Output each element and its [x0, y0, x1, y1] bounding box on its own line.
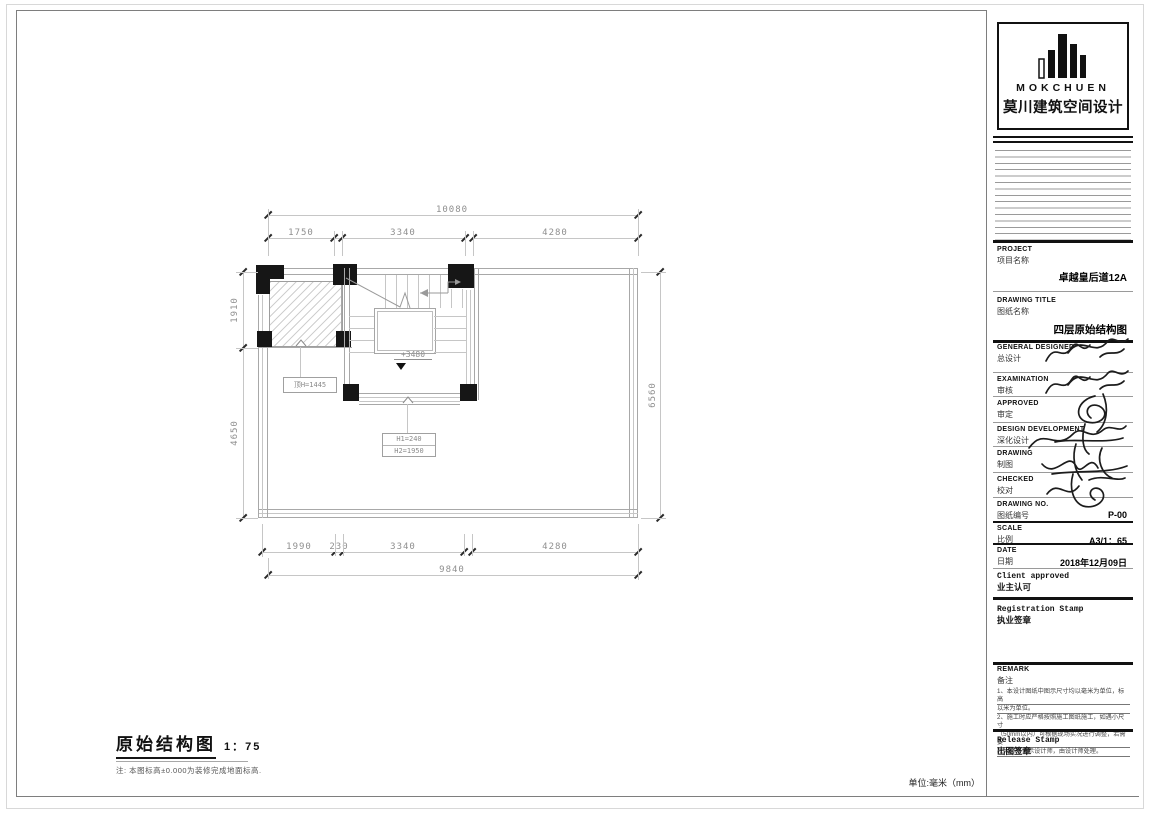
- release-stamp-label-cn: 出图签章: [997, 745, 1031, 757]
- title-block: MOKCHUEN 莫川建筑空间设计 PROJECT 项目名称 卓越皇后道12A …: [986, 10, 1139, 796]
- stair-step: [349, 328, 374, 329]
- extension-line: [268, 209, 269, 256]
- extension-line: [236, 518, 258, 519]
- row-label-cn: 制图: [997, 459, 1013, 470]
- divider: [993, 136, 1133, 138]
- title-underline: [116, 757, 216, 759]
- extension-line: [334, 231, 335, 256]
- column: [343, 384, 359, 401]
- release-stamp-label-en: Release Stamp: [997, 736, 1059, 745]
- plan-title: 原始结构图: [116, 730, 216, 755]
- signature: [1039, 468, 1129, 510]
- drawing-title-label-en: DRAWING TITLE: [997, 297, 1056, 304]
- leader-line: [407, 404, 408, 433]
- stair-step: [434, 328, 466, 329]
- window-line: [466, 290, 467, 384]
- dim-label: 4280: [533, 542, 577, 552]
- title-underline-thin: [116, 761, 248, 762]
- leader-line: [300, 347, 301, 377]
- stair-step: [349, 340, 374, 341]
- plan-note: 注: 本图标高±0.000为装修完成地面标高.: [116, 765, 262, 776]
- remark-label-cn: 备注: [997, 675, 1013, 686]
- project-value: 卓越皇后道12A: [997, 269, 1127, 284]
- extension-line: [638, 209, 639, 256]
- level-label: +3480: [394, 350, 432, 360]
- dim-label: 6560: [648, 373, 658, 417]
- row-label-cn: 总设计: [997, 353, 1021, 364]
- dim-label: 4650: [230, 411, 240, 455]
- window-line: [470, 290, 471, 384]
- registration-stamp-label-en: Registration Stamp: [997, 605, 1083, 614]
- client-approved-label-cn: 业主认可: [997, 581, 1031, 593]
- extension-line: [464, 534, 465, 556]
- divider: [993, 521, 1133, 523]
- window-line: [629, 268, 630, 518]
- extension-line: [236, 348, 258, 349]
- window-line: [359, 393, 460, 394]
- remark-label-en: REMARK: [997, 666, 1030, 673]
- dim-label: 9840: [430, 565, 474, 575]
- project-label-en: PROJECT: [997, 246, 1032, 253]
- extension-line: [641, 272, 666, 273]
- column: [257, 331, 272, 347]
- window-line: [262, 295, 263, 518]
- window-line: [267, 348, 268, 518]
- chevron-marker-icon: [295, 339, 307, 347]
- date-label-en: DATE: [997, 547, 1017, 554]
- extension-line: [641, 518, 666, 519]
- stair-step: [434, 316, 466, 317]
- window-line: [258, 295, 259, 518]
- stair-void-inner: [377, 311, 433, 351]
- logo: MOKCHUEN 莫川建筑空间设计: [997, 22, 1129, 130]
- dim-label: 10080: [430, 205, 474, 215]
- ruled-lines: [995, 150, 1131, 243]
- dim-label: 3340: [381, 542, 425, 552]
- window-line: [637, 268, 638, 518]
- stair-step: [349, 352, 374, 353]
- dim-line: [262, 552, 464, 553]
- hatched-area: [269, 281, 343, 347]
- stair-break-line: [336, 262, 466, 312]
- column: [460, 384, 477, 401]
- scale-label-en: SCALE: [997, 525, 1022, 532]
- window-line: [359, 404, 460, 405]
- dim-line: [268, 575, 638, 576]
- row-label-cn: 校对: [997, 485, 1013, 496]
- unit-note: 单位:毫米（mm）: [850, 776, 980, 789]
- height-label-h1: H1=240: [383, 434, 435, 446]
- chevron-marker-icon: [402, 396, 414, 404]
- window-line: [258, 517, 638, 518]
- divider: [993, 543, 1133, 545]
- plan-scale: 1：75: [224, 738, 261, 754]
- divider: [993, 141, 1133, 143]
- window-line: [258, 509, 638, 510]
- divider: [993, 662, 1133, 665]
- client-approved-label-en: Client approved: [997, 572, 1069, 581]
- remark-line: 以米为单位。: [997, 705, 1130, 714]
- row-label-en: CHECKED: [997, 476, 1034, 483]
- registration-stamp-label-cn: 执业签章: [997, 614, 1031, 626]
- divider: [993, 729, 1133, 732]
- extension-line: [343, 534, 344, 556]
- dim-line: [268, 215, 638, 216]
- divider: [993, 240, 1133, 243]
- stair-step: [349, 316, 374, 317]
- extension-line: [472, 534, 473, 556]
- dim-line: [660, 272, 661, 518]
- remark-line: 1、本设计图纸中图示尺寸均以毫米为单位，标高: [997, 688, 1130, 705]
- height-label-group: H1=240 H2=1950: [382, 433, 436, 457]
- wall-line: [478, 268, 479, 400]
- brand-name-cn: 莫川建筑空间设计: [1003, 96, 1123, 117]
- dim-label: 3340: [381, 228, 425, 238]
- row-label-cn: 审核: [997, 385, 1013, 396]
- extension-line: [473, 231, 474, 256]
- dim-label: 1750: [279, 228, 323, 238]
- divider: [993, 597, 1133, 600]
- extension-line: [342, 231, 343, 256]
- window-line: [258, 513, 638, 514]
- extension-line: [236, 272, 258, 273]
- extension-line: [335, 534, 336, 556]
- building-logo-icon: [1031, 32, 1095, 80]
- brand-name: MOKCHUEN: [1016, 82, 1110, 94]
- divider: [993, 568, 1133, 569]
- drawing-title-label-cn: 图纸名称: [997, 306, 1029, 317]
- dim-line: [472, 552, 638, 553]
- row-label-cn: 审定: [997, 409, 1013, 420]
- dim-label: 1990: [277, 542, 321, 552]
- extension-line: [638, 524, 639, 580]
- drawing-frame: [16, 10, 1139, 797]
- window-line: [633, 268, 634, 518]
- dim-label: 230: [325, 542, 353, 552]
- column: [256, 265, 270, 294]
- wall-line: [474, 268, 475, 400]
- divider: [993, 291, 1133, 292]
- stair-step: [434, 352, 466, 353]
- level-marker-icon: [396, 363, 406, 370]
- extension-line: [465, 231, 466, 256]
- wall-line: [258, 347, 352, 348]
- scale-value: A3/1：65: [997, 534, 1127, 547]
- dim-line: [473, 238, 638, 239]
- dim-label: 1910: [230, 288, 240, 332]
- extension-line: [262, 524, 263, 557]
- extension-line: [268, 558, 269, 579]
- drawing-no-label-en: DRAWING NO.: [997, 501, 1049, 508]
- row-label-en: APPROVED: [997, 400, 1039, 407]
- project-label-cn: 项目名称: [997, 255, 1029, 266]
- stair-step: [434, 340, 466, 341]
- drawing-sheet: +3480 顶H=1445 H1=240 H2=1950 10080 1750 …: [0, 0, 1150, 813]
- row-label-en: EXAMINATION: [997, 376, 1049, 383]
- dim-line: [243, 272, 244, 518]
- height-label: 顶H=1445: [283, 377, 337, 393]
- drawing-no-value: P-00: [997, 510, 1127, 520]
- height-label-h2: H2=1950: [383, 446, 435, 456]
- signature: [1042, 333, 1132, 369]
- dim-line: [268, 238, 465, 239]
- dim-label: 4280: [533, 228, 577, 238]
